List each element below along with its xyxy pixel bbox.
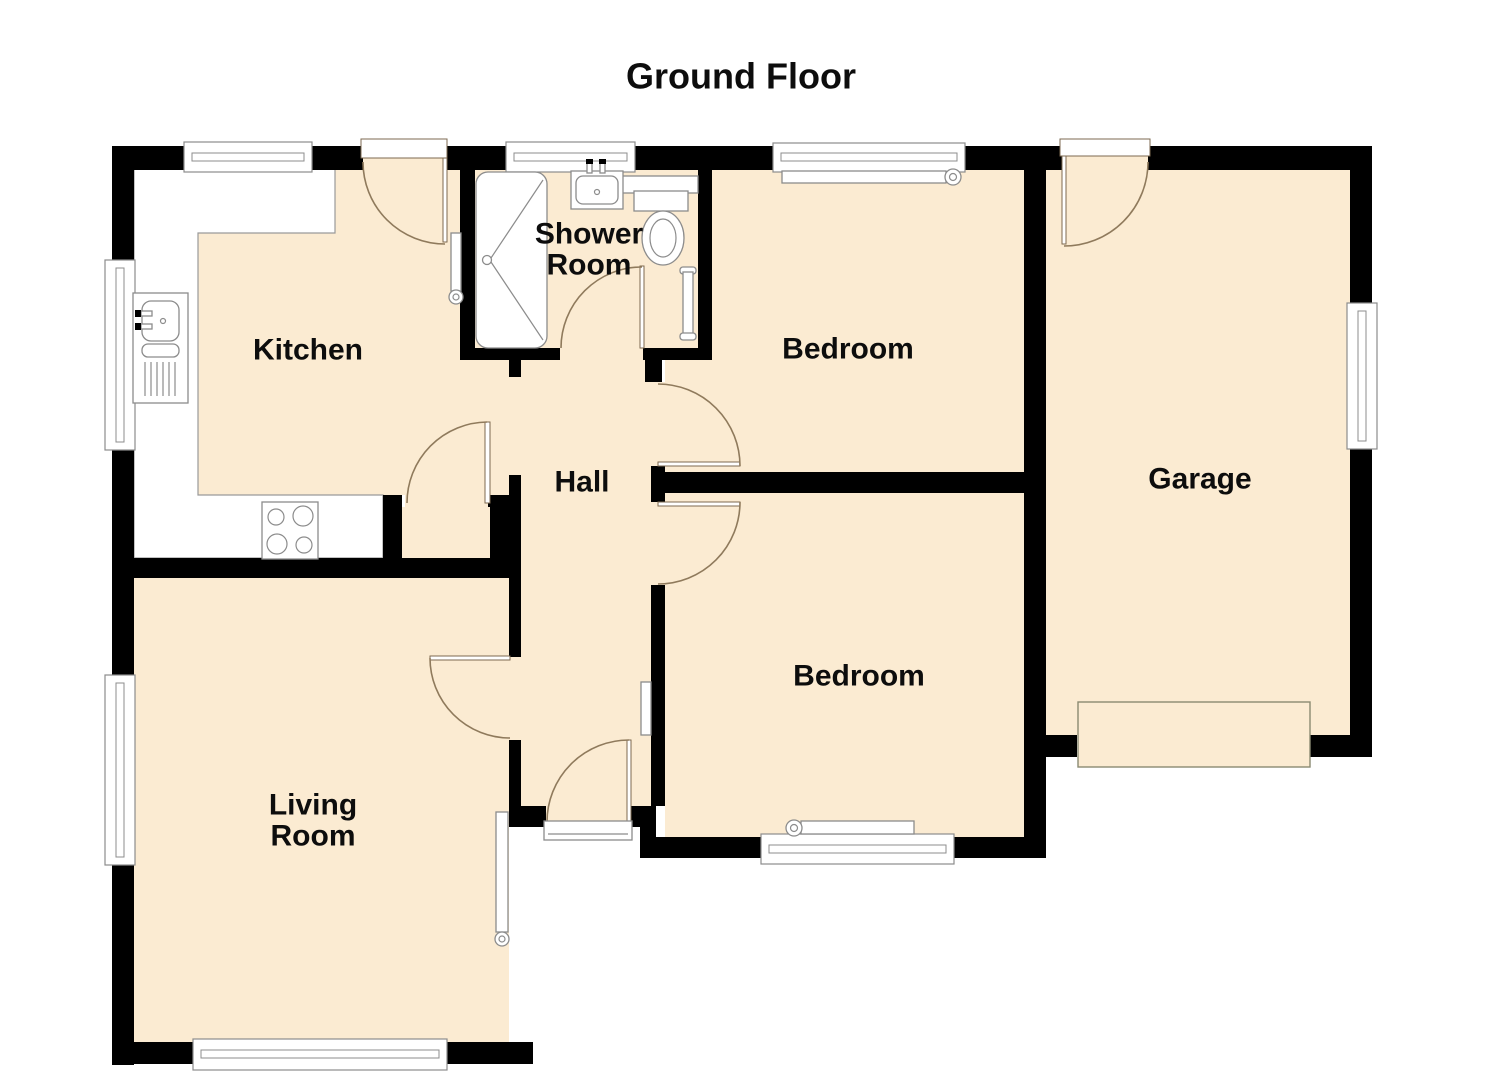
garage-door-icon [1078,702,1310,767]
front-door-threshold-icon [544,821,632,840]
floor-cupboard [402,507,490,558]
floor-gap [560,348,643,360]
wall [509,740,521,807]
room-label-shower-room: Shower Room [535,219,643,280]
wall [509,475,521,657]
wall [509,360,521,377]
floor-areas [134,153,1350,1042]
wall [112,146,134,262]
radiator-icon [495,812,509,946]
room-label-hall: Hall [554,468,609,499]
radiator-icon [680,267,696,340]
room-label-bedroom-bottom: Bedroom [793,662,925,693]
floorplan-drawing [0,0,1485,1080]
kitchen-sink-icon [133,293,188,403]
window-icon [105,675,135,865]
wall [640,837,763,858]
window-icon [761,834,954,864]
wall [963,146,1063,170]
wall [633,146,775,170]
floor-gap [405,495,488,507]
floorplan-title: Ground Floor [626,59,856,96]
radiator-icon [786,820,914,836]
room-label-kitchen: Kitchen [253,336,363,367]
floor-gap [509,657,521,740]
wall [460,168,475,360]
floor-gap [546,806,630,822]
floor-kitchen [335,168,460,234]
wall [1148,146,1372,170]
wall [651,585,665,806]
hob-icon [262,502,318,559]
wall [445,1042,533,1064]
floor-hall [521,360,652,806]
wall [112,863,134,1065]
radiator-icon [782,169,961,185]
wall [490,507,509,578]
wall [310,146,363,170]
wall [1350,146,1372,757]
wall [383,495,402,578]
wall [112,558,521,578]
window-icon [1347,303,1377,449]
window-icon [773,143,965,172]
wall [509,806,546,827]
window-icon [184,142,312,172]
floor-gap [651,502,665,585]
room-label-bedroom-top: Bedroom [782,335,914,366]
floorplan-page: Ground Floor Kitchen Shower Room Bedroom… [0,0,1485,1080]
floor-gap [651,382,665,466]
wall [488,495,509,507]
wall [445,146,508,170]
radiator-icon [641,682,651,735]
floor-gap [509,377,521,475]
wall [698,168,712,360]
wall [460,348,560,360]
window-icon [506,142,635,172]
floor-bedroom-top [665,360,712,472]
window-icon [105,260,135,450]
wall [630,806,656,827]
wall [112,1042,195,1064]
room-label-garage: Garage [1148,465,1251,496]
wall [1024,735,1077,757]
room-label-living-room: Living Room [269,790,357,851]
floor-bedroom-top [712,170,1024,472]
window-icon [193,1039,447,1070]
wall [652,472,1024,493]
wall [645,360,662,382]
radiator-icon [449,233,463,304]
floor-garage [1046,170,1350,735]
